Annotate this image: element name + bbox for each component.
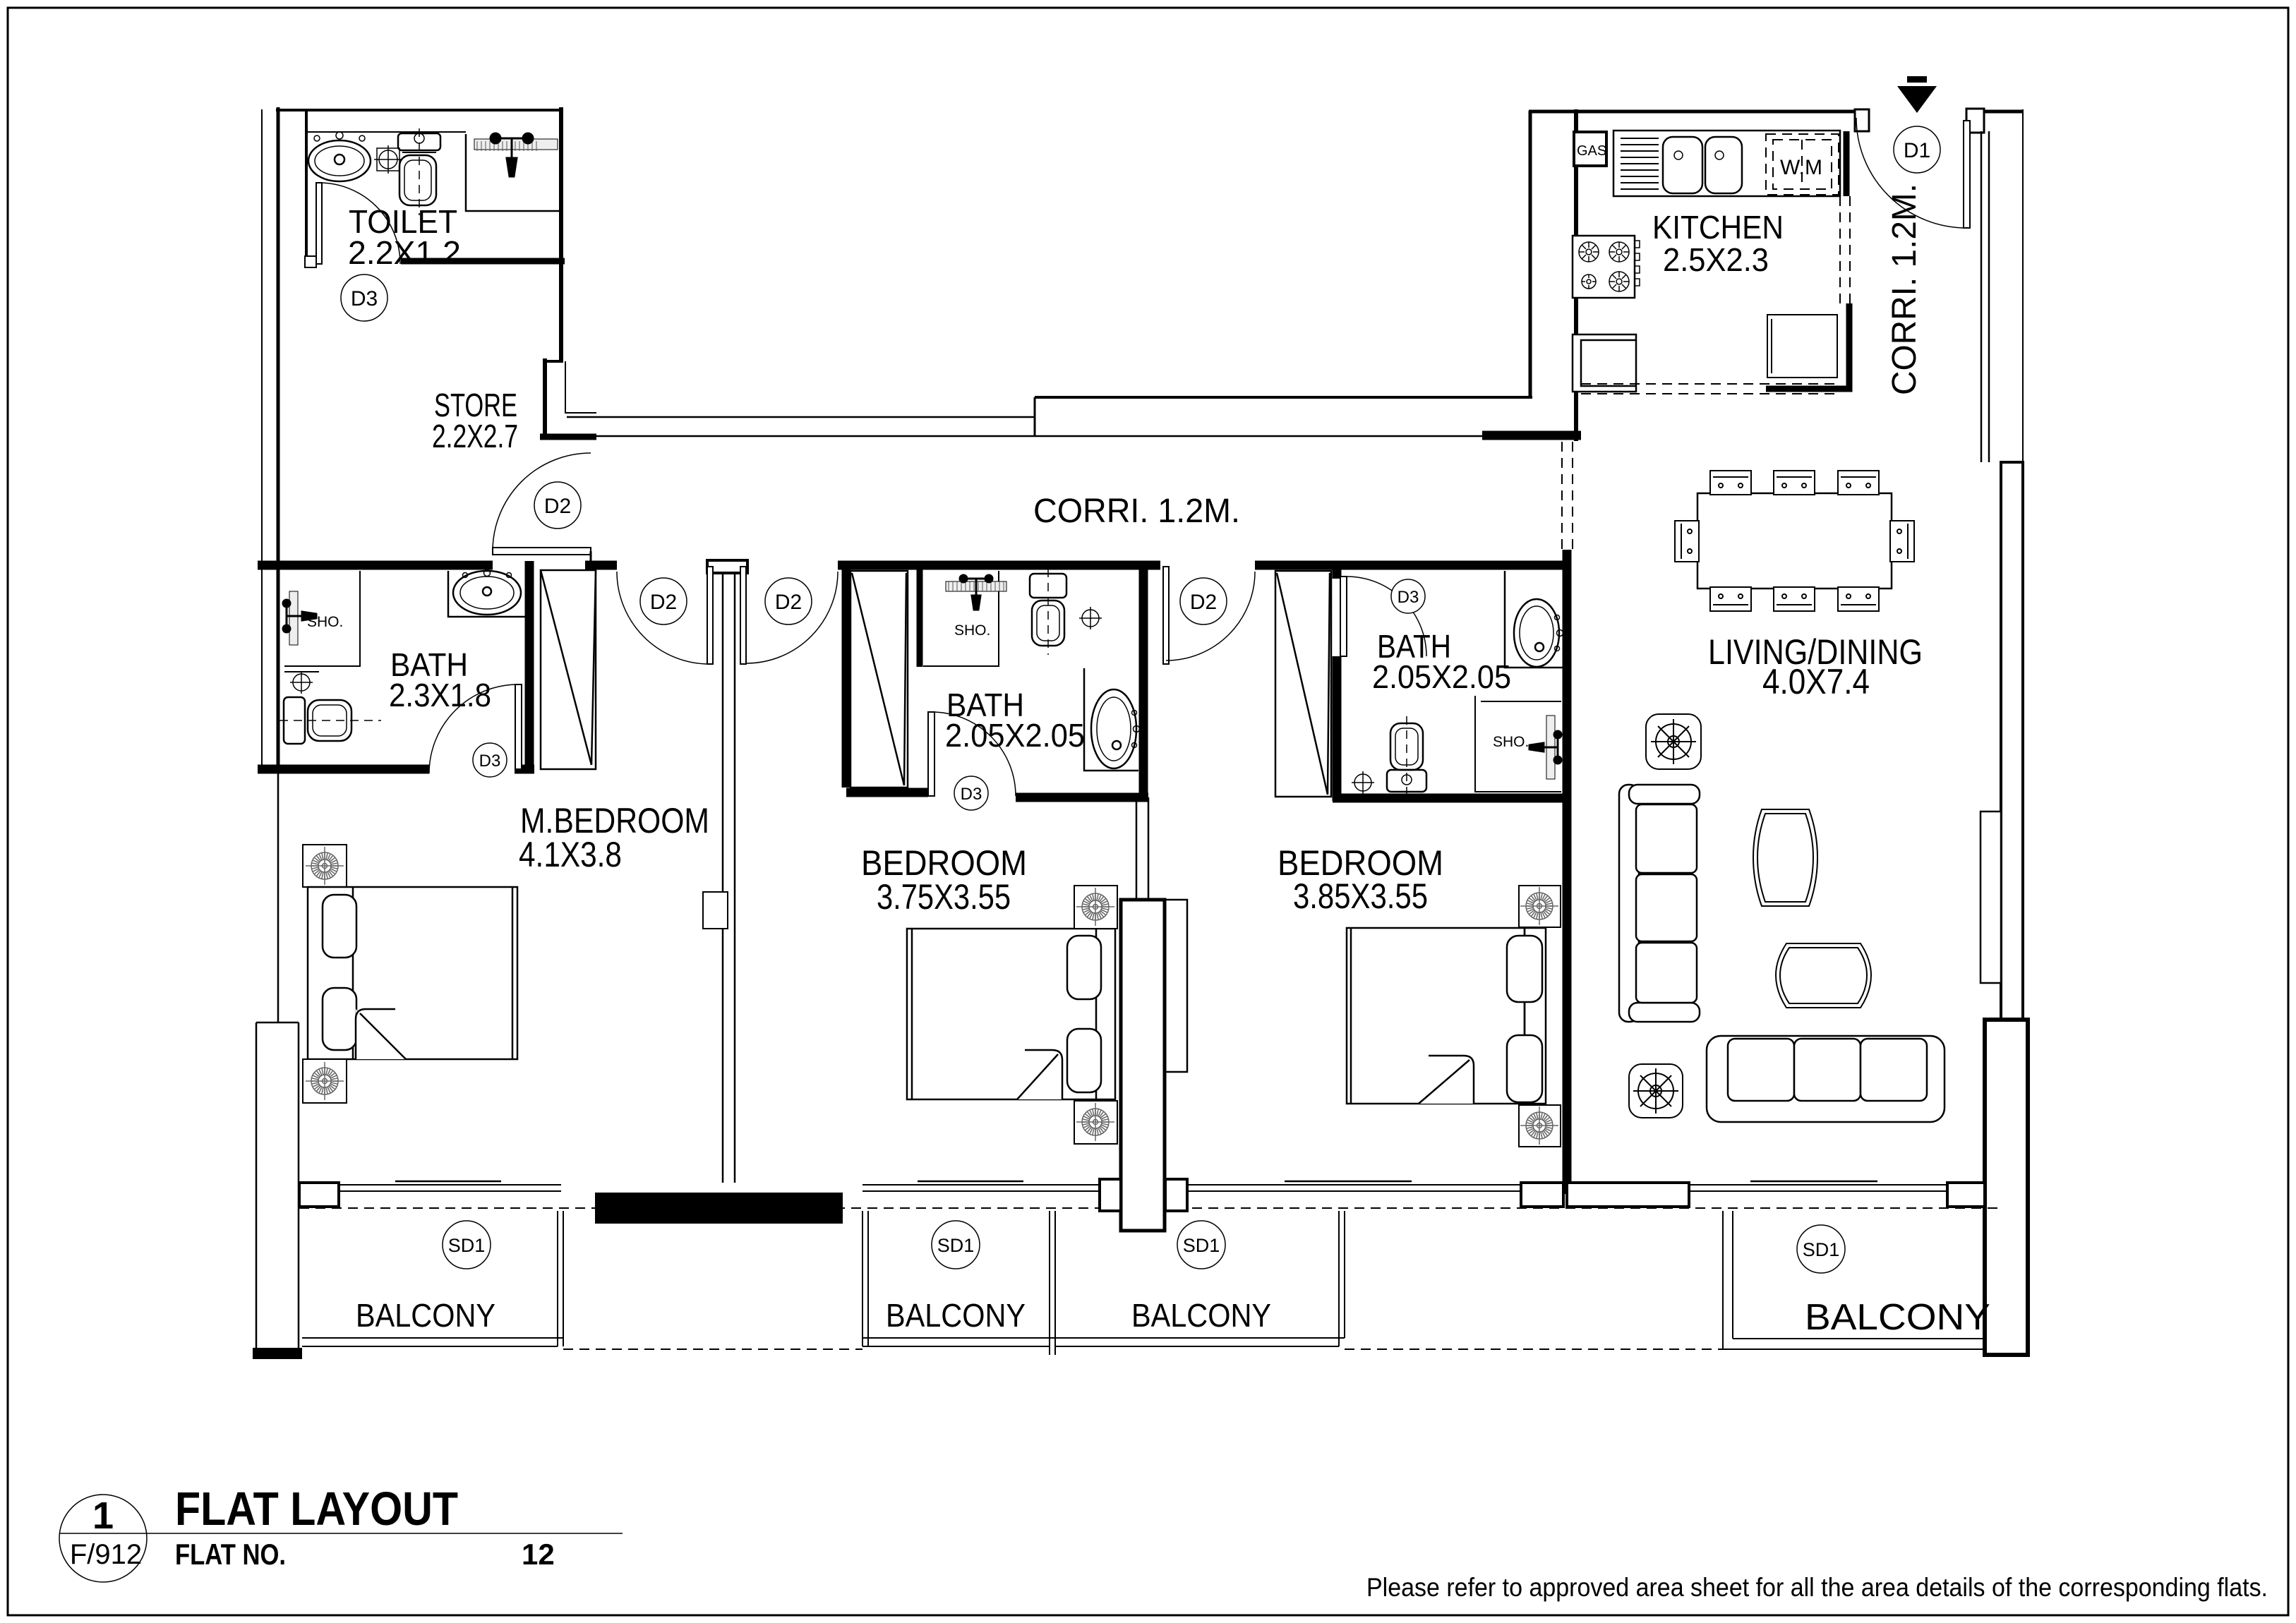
svg-text:BALCONY: BALCONY <box>886 1297 1026 1334</box>
svg-text:D3: D3 <box>1398 588 1419 607</box>
svg-text:D2: D2 <box>1190 591 1217 614</box>
svg-text:CORRI. 1.2M.: CORRI. 1.2M. <box>1033 493 1240 530</box>
svg-text:2.5X2.3: 2.5X2.3 <box>1663 241 1769 278</box>
svg-text:D3: D3 <box>961 785 982 804</box>
svg-text:SD1: SD1 <box>1183 1235 1220 1256</box>
svg-text:1: 1 <box>92 1495 114 1537</box>
svg-text:SD1: SD1 <box>448 1235 486 1256</box>
svg-text:SHO.: SHO. <box>1493 734 1529 750</box>
svg-text:KITCHEN: KITCHEN <box>1652 209 1784 246</box>
svg-text:FLAT LAYOUT: FLAT LAYOUT <box>175 1483 458 1535</box>
svg-text:D2: D2 <box>775 591 802 614</box>
svg-text:D1: D1 <box>1904 139 1930 162</box>
svg-text:2.05X2.05: 2.05X2.05 <box>945 717 1085 754</box>
svg-text:BALCONY: BALCONY <box>1131 1297 1271 1334</box>
svg-text:2.2X1.2: 2.2X1.2 <box>348 234 461 271</box>
svg-text:SHO.: SHO. <box>307 614 343 630</box>
svg-text:SD1: SD1 <box>1803 1239 1840 1260</box>
svg-text:12: 12 <box>522 1538 555 1571</box>
svg-text:3.85X3.55: 3.85X3.55 <box>1293 876 1428 916</box>
svg-text:GAS: GAS <box>1577 143 1606 159</box>
svg-text:3.75X3.55: 3.75X3.55 <box>877 877 1011 917</box>
svg-text:SHO.: SHO. <box>954 622 990 639</box>
svg-text:D3: D3 <box>479 752 501 771</box>
svg-text:Please refer to approved area: Please refer to approved area sheet for … <box>1366 1573 2268 1602</box>
svg-text:4.1X3.8: 4.1X3.8 <box>519 835 622 874</box>
svg-text:2.05X2.05: 2.05X2.05 <box>1372 658 1511 695</box>
svg-text:CORRI. 1.2M.: CORRI. 1.2M. <box>1886 183 1923 395</box>
svg-text:BALCONY: BALCONY <box>356 1297 495 1334</box>
svg-text:F/912: F/912 <box>70 1539 142 1570</box>
svg-text:SD1: SD1 <box>937 1235 975 1256</box>
svg-text:D2: D2 <box>544 495 571 518</box>
svg-text:BALCONY: BALCONY <box>1805 1297 1990 1338</box>
svg-text:W.M: W.M <box>1780 156 1822 179</box>
svg-text:D2: D2 <box>650 591 677 614</box>
svg-text:2.2X2.7: 2.2X2.7 <box>432 418 518 454</box>
svg-text:D3: D3 <box>351 287 378 310</box>
svg-text:FLAT NO.: FLAT NO. <box>175 1538 286 1571</box>
svg-text:4.0X7.4: 4.0X7.4 <box>1762 662 1870 701</box>
